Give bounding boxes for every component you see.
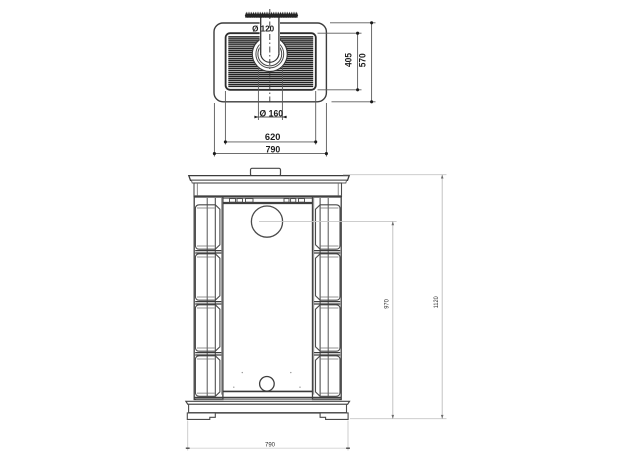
svg-text:1120: 1120 bbox=[433, 296, 440, 308]
svg-text:Ø 160: Ø 160 bbox=[260, 109, 284, 119]
svg-text:620: 620 bbox=[265, 132, 281, 142]
svg-text:790: 790 bbox=[266, 144, 281, 154]
svg-text:405: 405 bbox=[343, 53, 353, 67]
svg-text:790: 790 bbox=[265, 442, 275, 449]
svg-text:Ø 120: Ø 120 bbox=[252, 25, 275, 34]
svg-text:970: 970 bbox=[384, 299, 391, 309]
svg-text:570: 570 bbox=[357, 53, 367, 67]
